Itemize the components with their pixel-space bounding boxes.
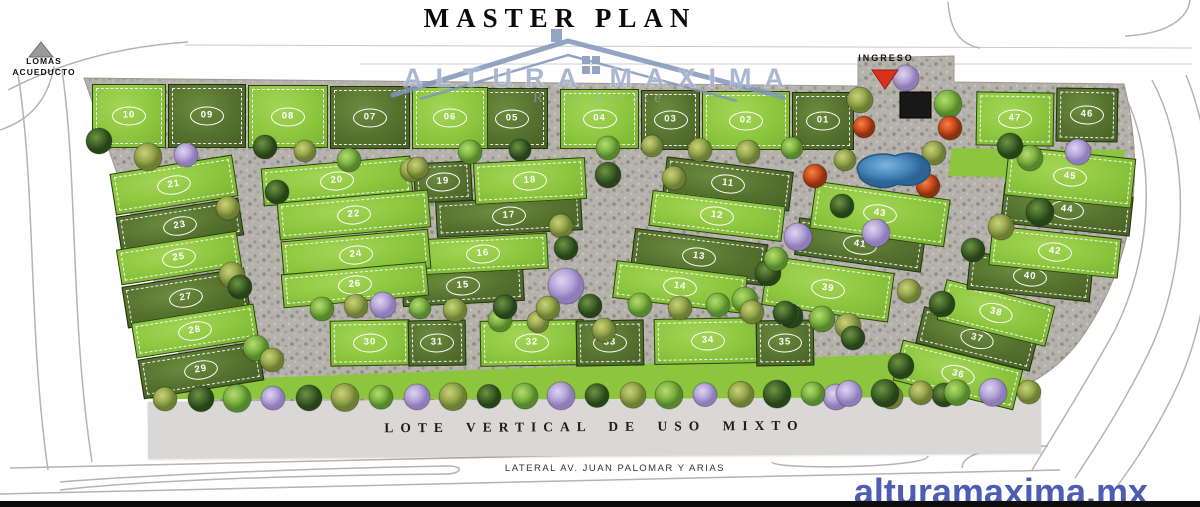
lot-number: 21 [156, 173, 193, 197]
lot-07[interactable]: 07 [330, 86, 410, 149]
lot-number: 15 [446, 276, 481, 297]
lot-number: 18 [513, 171, 548, 192]
lot-number: 31 [420, 333, 454, 353]
lot-number: 01 [806, 112, 840, 131]
lot-number: 10 [112, 107, 146, 126]
bottom-edge-bar [0, 501, 1200, 507]
lot-34[interactable]: 34 [654, 317, 763, 365]
lot-number: 43 [862, 202, 898, 226]
lot-46[interactable]: 46 [1056, 87, 1119, 142]
lot-number: 03 [654, 111, 688, 130]
lot-18[interactable]: 18 [473, 157, 587, 205]
lot-number: 17 [492, 206, 527, 227]
lot-number: 25 [161, 246, 198, 270]
lot-number: 04 [583, 110, 617, 129]
lot-16[interactable]: 16 [417, 233, 549, 276]
lot-08[interactable]: 08 [248, 85, 328, 148]
lot-number: 32 [515, 333, 549, 353]
lot-number: 34 [691, 331, 725, 351]
lot-number: 30 [353, 333, 387, 353]
lot-number: 42 [1037, 241, 1073, 263]
lot-33[interactable]: 33 [576, 319, 645, 366]
lot-number: 29 [183, 358, 220, 382]
lot-number: 11 [710, 172, 746, 195]
lot-number: 09 [190, 107, 224, 126]
lot-number: 26 [337, 274, 373, 296]
lot-number: 45 [1052, 166, 1088, 188]
lot-number: 05 [495, 109, 529, 128]
lot-number: 28 [177, 319, 214, 343]
lot-10[interactable]: 10 [92, 84, 166, 148]
lot-number: 36 [939, 362, 977, 389]
lot-47[interactable]: 47 [976, 91, 1055, 146]
lot-number: 47 [998, 109, 1032, 129]
lot-number: 24 [338, 244, 374, 266]
lot-number: 20 [319, 170, 355, 192]
entrance-label: INGRESO [840, 53, 932, 63]
lot-number: 07 [353, 108, 387, 127]
lot-number: 39 [810, 277, 846, 301]
road-label-lateral: LATERAL AV. JUAN PALOMAR Y ARIAS [430, 463, 800, 474]
page-title: MASTER PLAN [360, 3, 760, 34]
lot-number: 12 [699, 204, 735, 227]
lot-01[interactable]: 01 [792, 92, 854, 150]
lot-number: 08 [271, 107, 305, 126]
lot-number: 33 [593, 333, 627, 353]
lot-number: 06 [433, 109, 467, 128]
lot-number: 35 [768, 333, 802, 353]
lot-30[interactable]: 30 [330, 319, 411, 366]
lot-number: 46 [1070, 105, 1104, 125]
lot-number: 19 [426, 172, 461, 193]
lot-number: 13 [681, 245, 717, 268]
lot-number: 16 [466, 244, 501, 265]
brand-subtitle: Real Estate [470, 90, 730, 107]
road-label-lomas-acueducto: LOMAS ACUEDUCTO [0, 56, 88, 78]
lot-32[interactable]: 32 [480, 319, 585, 367]
lot-number: 02 [729, 111, 763, 130]
lot-35[interactable]: 35 [756, 319, 815, 366]
master-plan: LOTE VERTICAL DE USO MIXTO 0102030405060… [0, 0, 1200, 507]
lot-number: 14 [662, 275, 698, 298]
lot-number: 38 [977, 300, 1015, 327]
lot-number: 22 [336, 204, 372, 226]
lot-31[interactable]: 31 [408, 319, 467, 366]
lot-number: 27 [168, 286, 205, 310]
lot-number: 23 [162, 214, 199, 238]
lot-09[interactable]: 09 [168, 84, 246, 148]
